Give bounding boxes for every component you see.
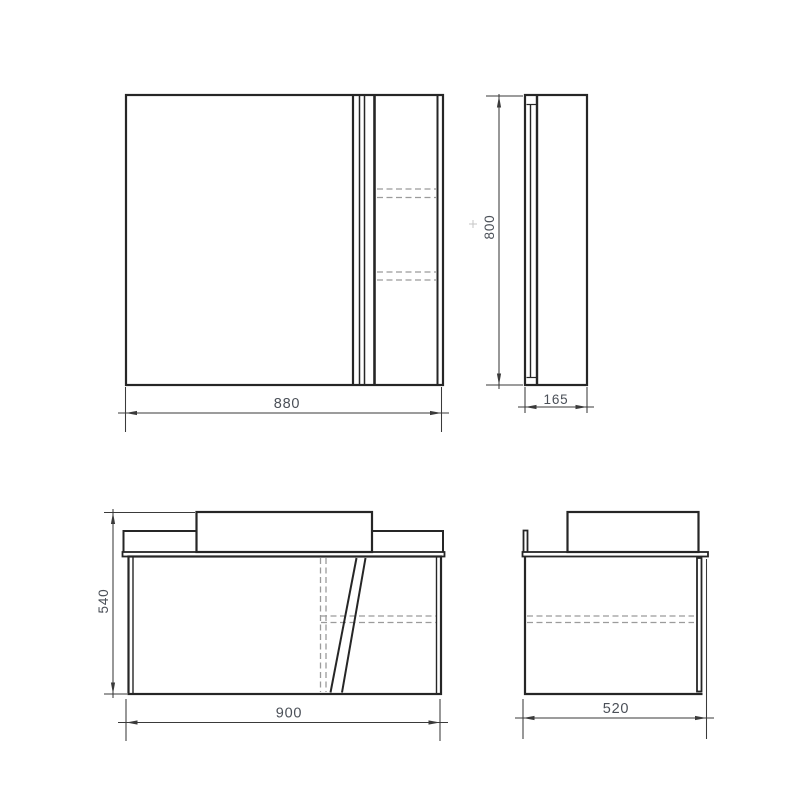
arrow-left-icon [525, 405, 537, 409]
dimension-label-800: 800 [482, 215, 497, 240]
mirror-front-outline [126, 95, 443, 385]
side-hidden-lines [527, 616, 694, 623]
arrow-left-icon [126, 411, 138, 415]
arrow-right-icon [695, 716, 707, 720]
furniture-dimension-drawing: 880 800 165 [0, 0, 800, 800]
dimension-vanity-width: 900 [118, 699, 448, 741]
mirror-front-view [126, 95, 443, 385]
arrow-down-icon [497, 374, 501, 386]
washbasin-outline [197, 512, 373, 552]
countertop-side-edge [523, 552, 709, 557]
watermark-cross-icon [469, 220, 477, 228]
arrow-right-icon [429, 720, 441, 724]
dimension-label-165: 165 [544, 392, 569, 407]
vanity-side-body-outline [525, 557, 703, 695]
washbasin-side-outline [568, 512, 699, 552]
arrow-right-icon [576, 405, 588, 409]
arrow-left-icon [126, 720, 138, 724]
technical-drawing-page: 880 800 165 [0, 0, 800, 800]
arrow-right-icon [430, 411, 442, 415]
vanity-side-view [523, 512, 709, 694]
drawer-divider-slant-line [342, 558, 366, 693]
backsplash-left-ledge [124, 531, 197, 552]
arrow-up-icon [111, 513, 115, 525]
cabinet-shelf-hidden-lines [377, 189, 436, 280]
drain-hidden-lines [321, 558, 437, 692]
arrow-left-icon [523, 716, 535, 720]
backsplash-right-ledge [372, 531, 443, 552]
vanity-body-outline [129, 557, 442, 695]
dimension-label-540: 540 [96, 589, 111, 614]
mirror-side-view [525, 95, 587, 385]
arrow-down-icon [111, 683, 115, 695]
dimension-mirror-width: 880 [118, 387, 449, 432]
dimension-mirror-height: 800 [482, 94, 523, 389]
dimension-vanity-height: 540 [96, 509, 195, 698]
backsplash-side-tab [524, 531, 528, 553]
door-front-strip [697, 558, 702, 692]
dimension-label-900: 900 [276, 706, 303, 722]
dimension-mirror-depth: 165 [518, 387, 594, 413]
mirror-side-outline [525, 95, 587, 385]
dimension-label-520: 520 [603, 701, 630, 717]
arrow-up-icon [497, 96, 501, 108]
drawer-divider-slant-line [331, 558, 357, 693]
dimension-label-880: 880 [274, 396, 301, 412]
dimension-vanity-depth: 520 [515, 559, 714, 739]
vanity-front-view [123, 512, 445, 694]
